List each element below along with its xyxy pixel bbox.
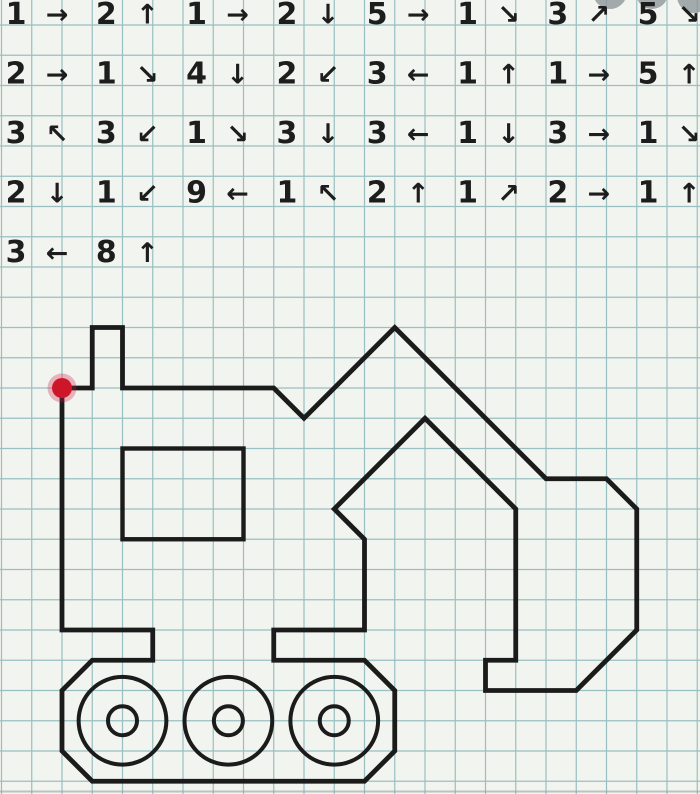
- instruction-arrow: ↑: [678, 59, 700, 90]
- graphic-dictation-sheet: 1→2↑1→2↓5→1↘3↗5↘2→1↘4↓2↙3←1↑1→5↑3↖3↙1↘3↓…: [0, 0, 700, 794]
- instruction-count: 1: [457, 0, 478, 32]
- instruction-count: 1: [547, 56, 568, 91]
- instruction-arrow: ↑: [407, 179, 430, 210]
- instruction-arrow: →: [587, 59, 610, 90]
- instruction-arrow: ↘: [678, 0, 700, 31]
- instruction-arrow: →: [46, 0, 69, 31]
- instruction-arrow: ↙: [317, 59, 340, 90]
- instruction-count: 1: [638, 176, 659, 211]
- instruction-count: 1: [96, 56, 117, 91]
- instruction-arrow: ↓: [497, 119, 520, 150]
- instruction-arrow: ↓: [46, 179, 69, 210]
- instruction-count: 2: [6, 56, 27, 91]
- instruction-count: 2: [96, 0, 117, 32]
- instruction-count: 1: [638, 116, 659, 151]
- instruction-count: 5: [367, 0, 388, 32]
- instruction-count: 1: [96, 176, 117, 211]
- instruction-arrow: ←: [407, 119, 430, 150]
- instruction-arrow: ↑: [678, 179, 700, 210]
- instruction-count: 4: [186, 56, 207, 91]
- instruction-count: 5: [638, 0, 659, 32]
- instruction-arrow: →: [407, 0, 430, 31]
- instruction-count: 2: [6, 176, 27, 211]
- instruction-arrow: ↖: [317, 179, 340, 210]
- instruction-arrow: ↙: [136, 119, 159, 150]
- instruction-count: 3: [6, 235, 27, 270]
- instruction-arrow: ↑: [497, 59, 520, 90]
- instruction-count: 3: [547, 0, 568, 32]
- instruction-count: 2: [367, 176, 388, 211]
- instruction-arrow: ↖: [46, 119, 69, 150]
- instruction-count: 1: [276, 176, 297, 211]
- instruction-arrow: ←: [226, 179, 249, 210]
- instruction-arrow: →: [226, 0, 249, 31]
- instruction-count: 3: [367, 116, 388, 151]
- instruction-count: 1: [457, 116, 478, 151]
- instruction-count: 3: [547, 116, 568, 151]
- worksheet-photo: 1→2↑1→2↓5→1↘3↗5↘2→1↘4↓2↙3←1↑1→5↑3↖3↙1↘3↓…: [0, 0, 700, 794]
- instruction-count: 2: [276, 56, 297, 91]
- instruction-arrow: ↓: [317, 0, 340, 31]
- instruction-count: 9: [186, 176, 207, 211]
- instruction-arrow: ←: [46, 238, 69, 269]
- instruction-arrow: ↗: [587, 0, 610, 31]
- instruction-arrow: →: [587, 119, 610, 150]
- instruction-count: 1: [457, 176, 478, 211]
- instruction-count: 1: [6, 0, 27, 32]
- instruction-arrow: ↘: [497, 0, 520, 31]
- instruction-arrow: ←: [407, 59, 430, 90]
- start-dot: [52, 378, 72, 398]
- instruction-arrow: ↑: [136, 0, 159, 31]
- instruction-arrow: ↘: [678, 119, 700, 150]
- instruction-count: 1: [457, 56, 478, 91]
- instruction-count: 3: [367, 56, 388, 91]
- instruction-arrow: →: [46, 59, 69, 90]
- instruction-arrow: ↘: [136, 59, 159, 90]
- instruction-count: 3: [276, 116, 297, 151]
- instruction-count: 1: [186, 0, 207, 32]
- instruction-count: 2: [276, 0, 297, 32]
- instruction-arrow: ↘: [226, 119, 249, 150]
- instruction-count: 1: [186, 116, 207, 151]
- instruction-count: 3: [96, 116, 117, 151]
- instruction-arrow: ↗: [497, 179, 520, 210]
- instruction-arrow: ↓: [317, 119, 340, 150]
- instruction-count: 5: [638, 56, 659, 91]
- instruction-count: 8: [96, 235, 117, 270]
- instruction-arrow: →: [587, 179, 610, 210]
- instruction-count: 2: [547, 176, 568, 211]
- instruction-arrow: ↙: [136, 179, 159, 210]
- instruction-arrow: ↑: [136, 238, 159, 269]
- instruction-count: 3: [6, 116, 27, 151]
- instruction-arrow: ↓: [226, 59, 249, 90]
